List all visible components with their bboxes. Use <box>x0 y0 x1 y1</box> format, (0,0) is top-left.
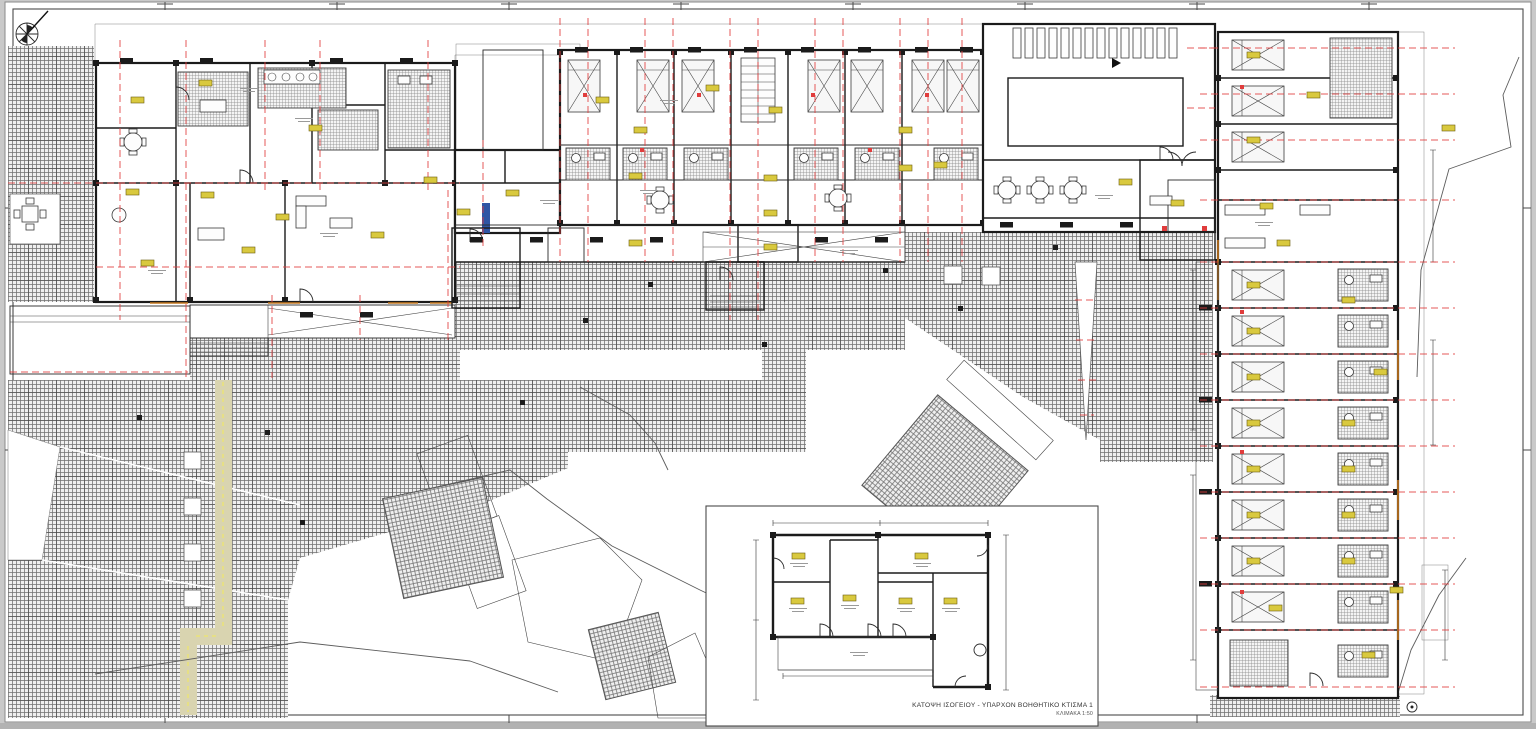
middle-wing-building <box>557 47 986 226</box>
inset-scale-note: ΚΛΙΜΑΚΑ 1:50 <box>1056 711 1093 717</box>
site-plan-svg: ΚΑΤΟΨΗ ΙΣΟΓΕΙΟΥ - ΥΠΑΡΧΟΝ ΒΟΗΘΗΤΙΚΟ ΚΤΙΣ… <box>0 0 1536 729</box>
west-annex <box>10 194 60 244</box>
drawing-sheet: ΚΑΤΟΨΗ ΙΣΟΓΕΙΟΥ - ΥΠΑΡΧΟΝ ΒΟΗΘΗΤΙΚΟ ΚΤΙΣ… <box>0 0 1536 729</box>
right-wing-building <box>1215 32 1399 698</box>
inset-caption: ΚΑΤΟΨΗ ΙΣΟΓΕΙΟΥ - ΥΠΑΡΧΟΝ ΒΟΗΘΗΤΙΚΟ ΚΤΙΣ… <box>912 702 1093 709</box>
inset-detail-box: ΚΑΤΟΨΗ ΙΣΟΓΕΙΟΥ - ΥΠΑΡΧΟΝ ΒΟΗΘΗΤΙΚΟ ΚΤΙΣ… <box>706 506 1098 726</box>
